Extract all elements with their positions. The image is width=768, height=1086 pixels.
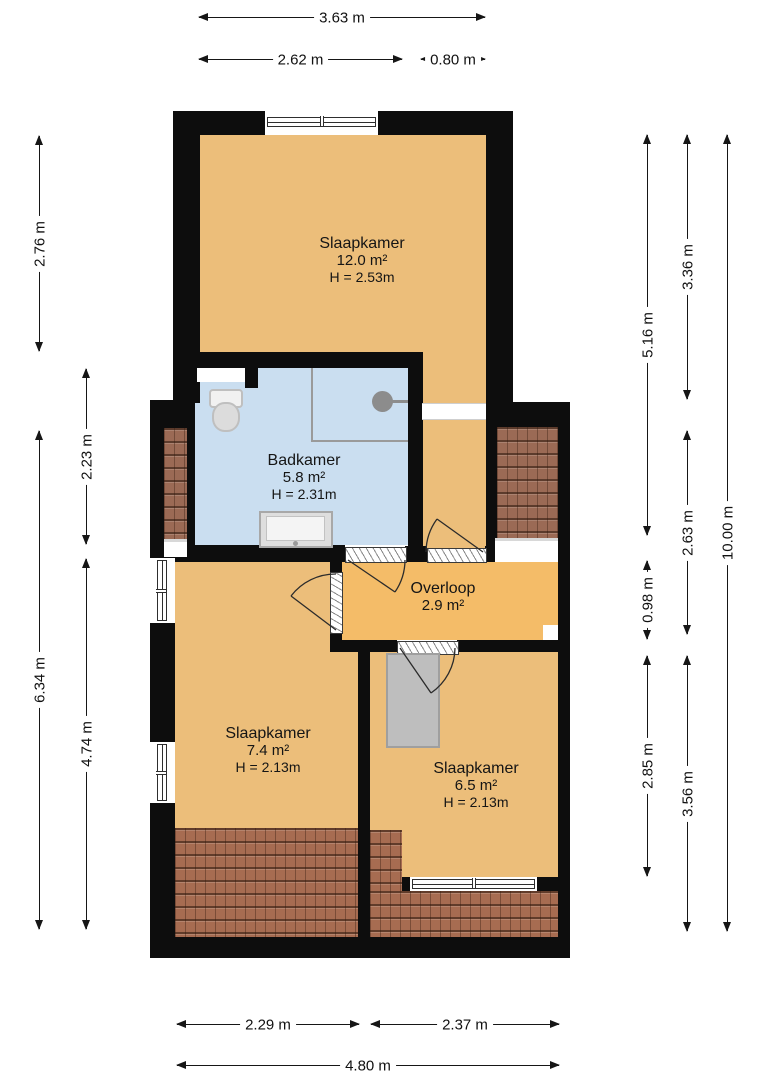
arrow-up-icon: [35, 430, 43, 440]
arrow-up-icon: [643, 134, 651, 144]
room-label-slaapkamer-left: Slaapkamer 7.4 m² H = 2.13m: [168, 725, 368, 775]
room-label-slaapkamer-right: Slaapkamer 6.5 m² H = 2.13m: [376, 760, 576, 810]
room-height: H = 2.53m: [262, 269, 462, 285]
arrow-up-icon: [82, 368, 90, 378]
window-mullion: [156, 589, 166, 593]
bathtub-basin: [266, 516, 325, 541]
dimension-label: 0.98 m: [639, 572, 656, 628]
room-name: Slaapkamer: [262, 235, 462, 252]
window: [265, 108, 378, 135]
dimension-label: 0.80 m: [425, 51, 481, 68]
roof-tiles-left-strip: [164, 428, 187, 539]
dimension-right-overloop: 0.98 m: [640, 560, 656, 640]
arrow-right-icon: [350, 1020, 360, 1028]
dimension-left-lower-room: 4.74 m: [79, 558, 95, 930]
dimension-label: 2.23 m: [78, 429, 95, 485]
roof-tiles-bottom-right: [370, 891, 558, 937]
arrow-left-icon: [198, 55, 208, 63]
wall: [150, 937, 570, 958]
arrow-up-icon: [643, 560, 651, 570]
wall: [245, 366, 258, 388]
wall: [405, 546, 427, 562]
door-badkamer: [345, 547, 407, 563]
arrow-down-icon: [683, 390, 691, 400]
wall: [486, 111, 513, 405]
arrow-up-icon: [35, 135, 43, 145]
roof-edge-right: [495, 538, 558, 562]
arrow-down-icon: [643, 867, 651, 877]
dimension-right-mid-section: 2.63 m: [680, 430, 696, 635]
arrow-up-icon: [683, 134, 691, 144]
dimension-label: 2.62 m: [273, 51, 329, 68]
dimension-label: 2.63 m: [679, 505, 696, 561]
room-name: Overloop: [343, 580, 543, 597]
room-name: Slaapkamer: [168, 725, 368, 742]
arrow-up-icon: [643, 655, 651, 665]
dimension-top-room: 2.62 m: [198, 52, 403, 68]
dimension-bottom-total: 4.80 m: [176, 1058, 560, 1074]
shower-enclosure: [311, 440, 408, 442]
roof-tiles-bottom-mid: [370, 830, 402, 891]
dimension-label: 2.85 m: [639, 738, 656, 794]
wall: [486, 402, 570, 427]
window-mullion: [320, 116, 324, 126]
room-label-badkamer: Badkamer 5.8 m² H = 2.31m: [204, 452, 404, 502]
arrow-down-icon: [643, 526, 651, 536]
wall-niche-badkamer: [197, 368, 245, 382]
arrow-right-icon: [550, 1061, 560, 1069]
room-label-overloop: Overloop 2.9 m²: [343, 580, 543, 614]
arrow-left-icon: [370, 1020, 380, 1028]
dimension-label: 2.29 m: [240, 1016, 296, 1033]
dimension-label: 3.56 m: [679, 766, 696, 822]
corridor: [422, 352, 486, 550]
room-area: 12.0 m²: [262, 252, 462, 269]
dimension-top-corridor: 0.80 m: [420, 52, 486, 68]
room-height: H = 2.13m: [168, 759, 368, 775]
arrow-right-icon: [550, 1020, 560, 1028]
bathtub-drain-icon: [293, 541, 298, 546]
dimension-right-bottom-section: 3.56 m: [680, 655, 696, 932]
roof-tiles-right-strip: [497, 427, 558, 538]
room-area: 5.8 m²: [204, 469, 404, 486]
room-name: Badkamer: [204, 452, 404, 469]
door-corridor: [427, 548, 487, 563]
arrow-left-icon: [198, 13, 208, 21]
wall: [457, 640, 558, 652]
arrow-down-icon: [82, 535, 90, 545]
dimension-label: 6.34 m: [31, 652, 48, 708]
arrow-left-icon: [176, 1020, 186, 1028]
arrow-down-icon: [723, 922, 731, 932]
arrow-up-icon: [683, 655, 691, 665]
room-label-slaapkamer-top: Slaapkamer 12.0 m² H = 2.53m: [262, 235, 462, 285]
arrow-down-icon: [82, 920, 90, 930]
dimension-left-badkamer: 2.23 m: [79, 368, 95, 545]
window: [410, 877, 537, 891]
dimension-label: 3.36 m: [679, 239, 696, 295]
dimension-left-top-room: 2.76 m: [32, 135, 48, 352]
window-mullion: [156, 771, 166, 775]
shower-head-icon: [372, 391, 393, 412]
roof-edge-left: [164, 539, 187, 557]
arrow-down-icon: [683, 625, 691, 635]
dimension-label: 2.37 m: [437, 1016, 493, 1033]
wall: [408, 352, 423, 562]
floor-plan: Slaapkamer 12.0 m² H = 2.53m Badkamer 5.…: [0, 0, 768, 1086]
room-height: H = 2.31m: [204, 486, 404, 502]
door-slaapkamer-left: [330, 572, 343, 634]
stairwell: [386, 653, 440, 748]
wall: [537, 877, 558, 891]
arrow-right-icon: [393, 55, 403, 63]
room-area: 6.5 m²: [376, 777, 576, 794]
arrow-up-icon: [723, 134, 731, 144]
dimension-label: 10.00 m: [719, 501, 736, 565]
arrow-down-icon: [35, 920, 43, 930]
dimension-label: 4.74 m: [78, 716, 95, 772]
dimension-right-top-section: 3.36 m: [680, 134, 696, 400]
dimension-right-upper-inner: 5.16 m: [640, 134, 656, 536]
shower-enclosure: [311, 368, 313, 442]
room-height: H = 2.13m: [376, 794, 576, 810]
wall: [330, 562, 342, 572]
wall-niche-overloop: [543, 625, 558, 640]
wall: [150, 803, 175, 937]
dimension-right-lower-room: 2.85 m: [640, 655, 656, 877]
room-area: 7.4 m²: [168, 742, 368, 759]
roof-tiles-bottom-left: [175, 828, 358, 937]
dimension-top-total: 3.63 m: [198, 10, 486, 26]
window: [148, 558, 175, 623]
arrow-right-icon: [476, 13, 486, 21]
arrow-up-icon: [683, 430, 691, 440]
room-name: Slaapkamer: [376, 760, 576, 777]
room-area: 2.9 m²: [343, 597, 543, 614]
dimension-left-lower-total: 6.34 m: [32, 430, 48, 930]
dimension-label: 4.80 m: [340, 1057, 396, 1074]
window-mullion: [472, 878, 476, 888]
dimension-label: 5.16 m: [639, 307, 656, 363]
dimension-bottom-right-room: 2.37 m: [370, 1017, 560, 1033]
wall: [358, 648, 370, 937]
corridor-opening: [422, 403, 486, 420]
dimension-label: 3.63 m: [314, 9, 370, 26]
arrow-down-icon: [643, 630, 651, 640]
arrow-left-icon: [176, 1061, 186, 1069]
dimension-bottom-left-room: 2.29 m: [176, 1017, 360, 1033]
dimension-label: 2.76 m: [31, 216, 48, 272]
arrow-up-icon: [82, 558, 90, 568]
wall: [173, 352, 423, 368]
wall: [558, 427, 570, 958]
toilet-bowl-icon: [212, 402, 240, 432]
dimension-right-total: 10.00 m: [720, 134, 736, 932]
arrow-down-icon: [683, 922, 691, 932]
arrow-down-icon: [35, 342, 43, 352]
